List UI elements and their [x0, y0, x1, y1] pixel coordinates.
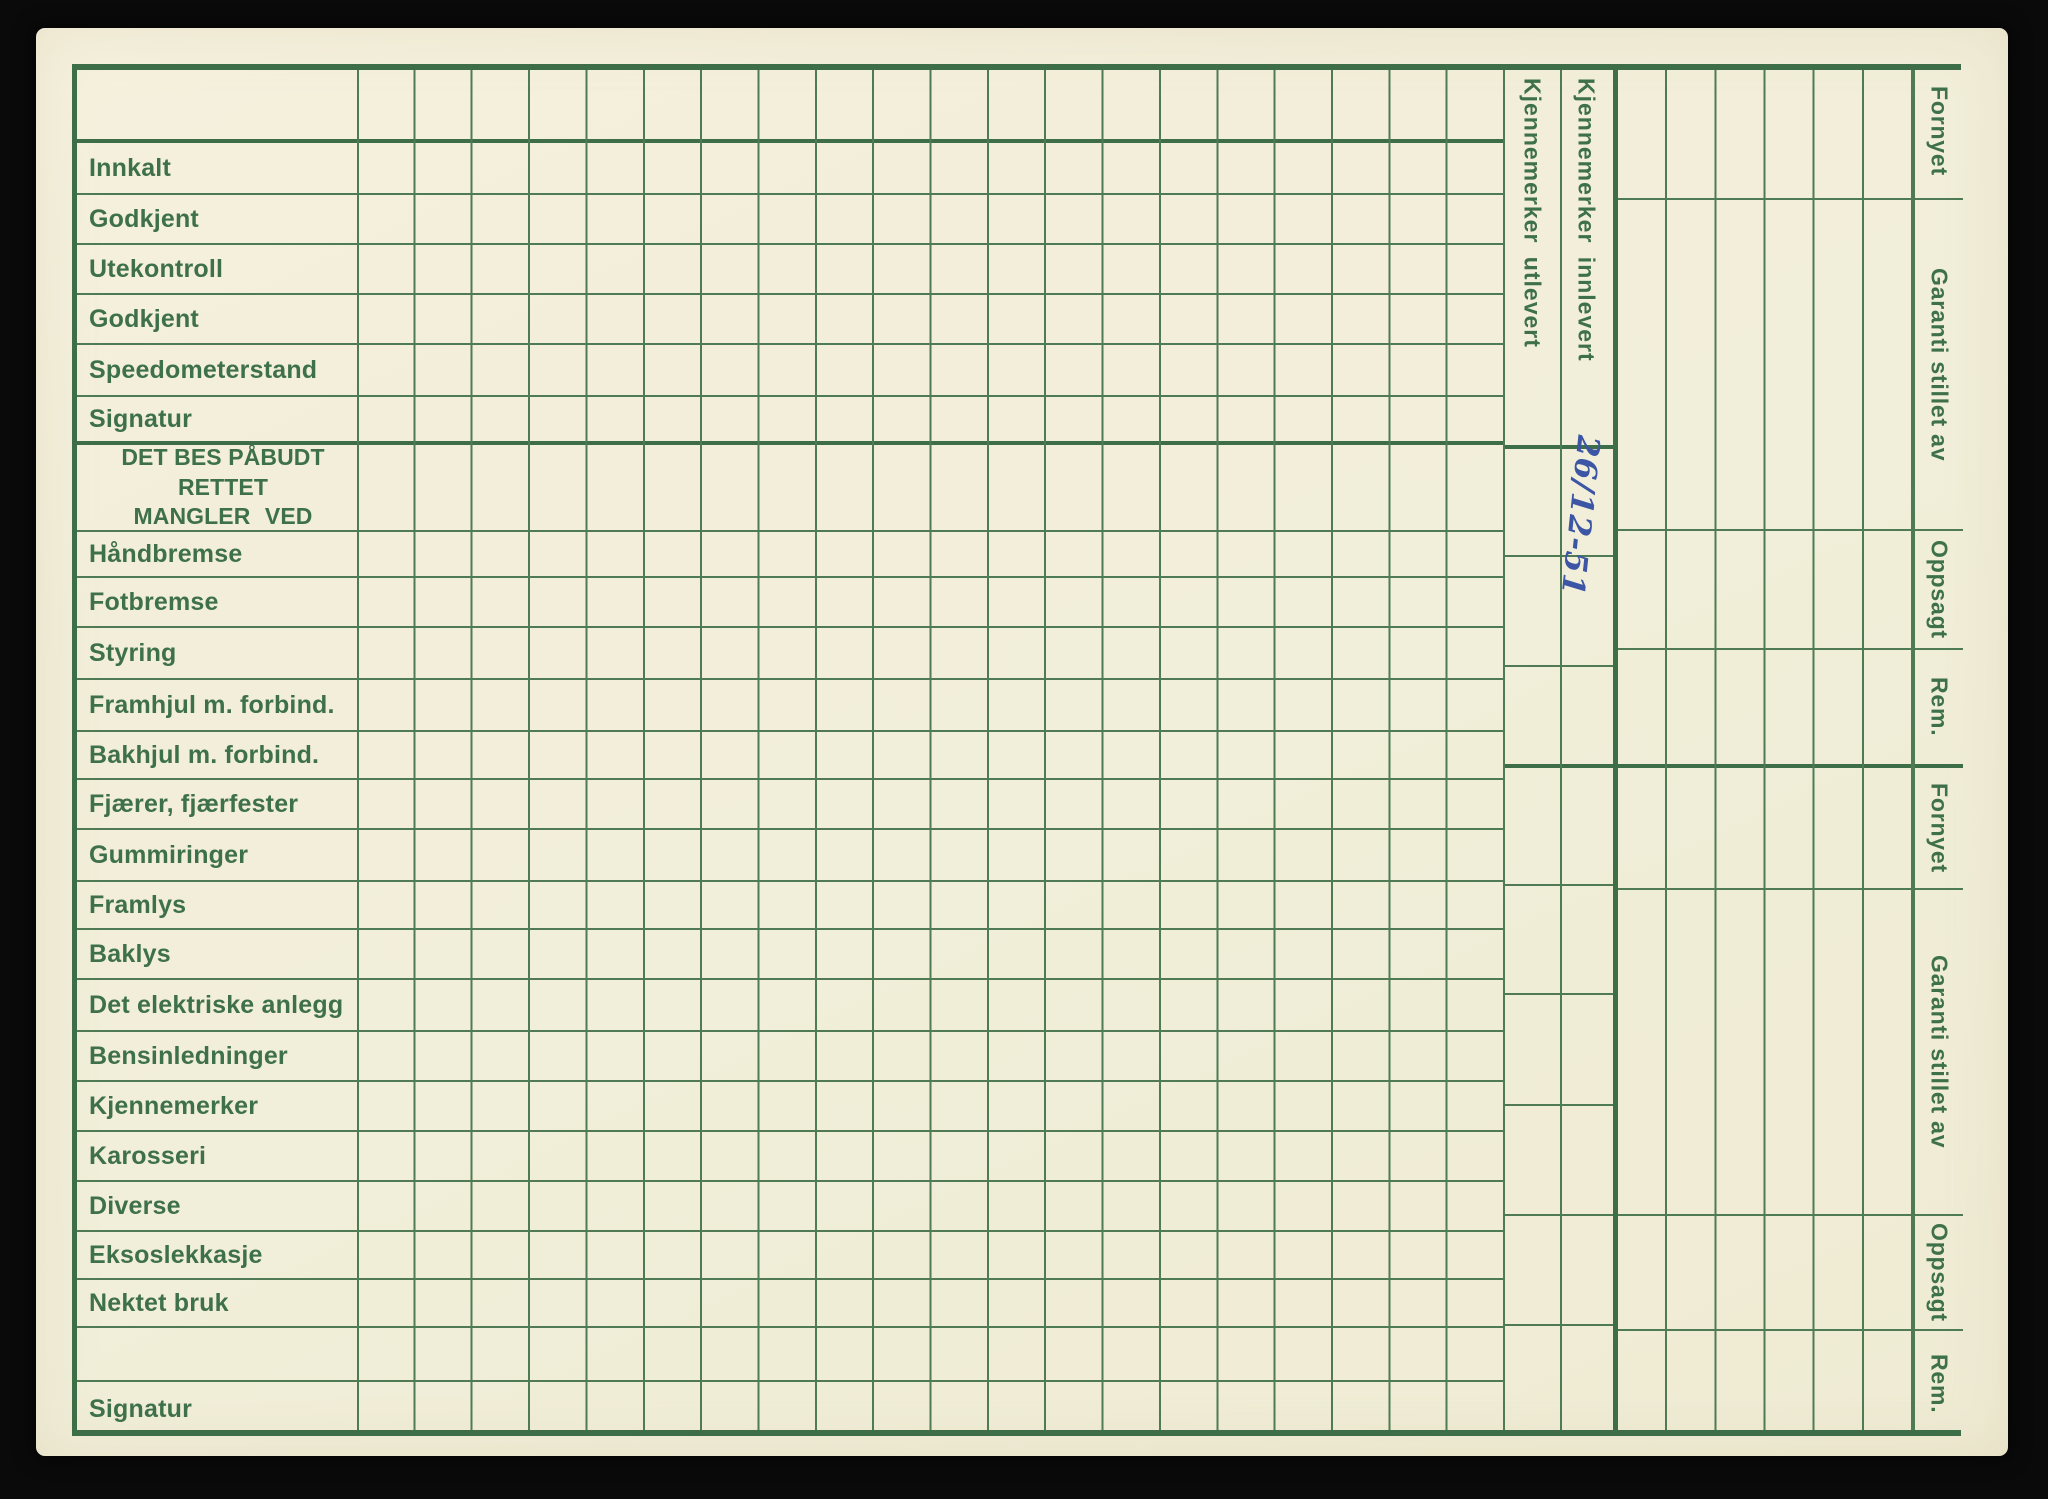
row-label: Utekontroll	[89, 255, 223, 284]
row-label: Signatur	[89, 1395, 192, 1424]
label-column-divider	[357, 64, 359, 1436]
form-row: Eksoslekkasje	[72, 1232, 1505, 1280]
row-label: Godkjent	[89, 205, 199, 234]
section-label-cell: Rem.	[1915, 650, 1963, 764]
form-row: Gummiringer	[72, 830, 1505, 882]
row-label: Innkalt	[89, 154, 171, 183]
section-label: Rem.	[1926, 677, 1953, 736]
form-row: Nektet bruk	[72, 1280, 1505, 1328]
section-label-cell: Fornyet	[1915, 64, 1963, 198]
form-row: Håndbremse	[72, 532, 1505, 578]
row-label-line2: MANGLER VED	[84, 502, 362, 531]
section-label: Oppsagt	[1926, 540, 1953, 639]
section-label: Fornyet	[1926, 783, 1953, 873]
form-row: Styring	[72, 628, 1505, 680]
row-label: Fotbremse	[89, 588, 219, 617]
row-label: Fjærer, fjærfester	[89, 790, 298, 819]
form-row: Fjærer, fjærfester	[72, 780, 1505, 830]
section-label-cell: Rem.	[1915, 1331, 1963, 1436]
section-label-cell: Oppsagt	[1915, 531, 1963, 648]
right-section: Garanti stillet av	[1618, 890, 1963, 1216]
row-label: DET BES PÅBUDT RETTET	[84, 443, 362, 502]
right-section: Rem.	[1618, 1331, 1963, 1436]
grid-cell	[1505, 995, 1613, 1106]
form-row: Utekontroll	[72, 245, 1505, 295]
form-row: Godkjent	[72, 195, 1505, 245]
kjennemerker-column-header: Kjennemerker innlevert	[1559, 64, 1613, 445]
row-label: Baklys	[89, 940, 171, 969]
form-row: DET BES PÅBUDT RETTET MANGLER VED	[72, 445, 1505, 532]
section-label: Fornyet	[1926, 86, 1953, 176]
section-label: Rem.	[1926, 1354, 1953, 1413]
form-row	[72, 1328, 1505, 1382]
form-row: Speedometerstand	[72, 345, 1505, 397]
header-band	[72, 64, 1505, 143]
section-label: Garanti stillet av	[1926, 955, 1953, 1148]
form-row: Diverse	[72, 1182, 1505, 1232]
row-label: Diverse	[89, 1192, 181, 1221]
grid-cell	[1505, 886, 1613, 995]
form-row: Det elektriske anlegg	[72, 980, 1505, 1032]
row-label: Bensinledninger	[89, 1042, 288, 1071]
right-section: Fornyet	[1618, 768, 1963, 890]
row-label: Framhjul m. forbind.	[89, 691, 335, 720]
kjennemerker-middle-divider	[1560, 64, 1562, 1436]
column-header-label: Kjennemerker innlevert	[1573, 78, 1600, 445]
right-section: Garanti stillet av	[1618, 200, 1963, 531]
row-label: Signatur	[89, 405, 192, 434]
form-row: Innkalt	[72, 143, 1505, 195]
section-label-cell: Fornyet	[1915, 768, 1963, 888]
section-label: Garanti stillet av	[1926, 268, 1953, 461]
grid-cell	[1505, 768, 1613, 886]
kjennemerker-headers: Kjennemerker utlevert Kjennemerker innle…	[1505, 64, 1613, 445]
row-label: Framlys	[89, 891, 186, 920]
section-label-cell: Garanti stillet av	[1915, 890, 1963, 1214]
row-label: Gummiringer	[89, 841, 248, 870]
left-rows-block: Innkalt Godkjent Utekontroll Godkjent Sp…	[72, 64, 1505, 1436]
grid-cell	[1505, 1216, 1613, 1326]
row-label: Eksoslekkasje	[89, 1241, 263, 1270]
form-row: Signatur	[72, 1382, 1505, 1436]
scan-background: { "colors": { "bg": "#0a0a0a", "paper": …	[0, 0, 2048, 1499]
form-row: Godkjent	[72, 295, 1505, 345]
right-section: Rem.	[1618, 650, 1963, 768]
row-label: Håndbremse	[89, 540, 242, 569]
row-label: Karosseri	[89, 1142, 206, 1171]
row-label: Styring	[89, 639, 177, 668]
right-section: Fornyet	[1618, 64, 1963, 200]
row-label: Godkjent	[89, 305, 199, 334]
form-row: Bakhjul m. forbind.	[72, 732, 1505, 780]
form-row: Baklys	[72, 930, 1505, 980]
kjennemerker-column-header: Kjennemerker utlevert	[1505, 64, 1559, 445]
form-row: Fotbremse	[72, 578, 1505, 628]
kjennemerker-columns: Kjennemerker utlevert Kjennemerker innle…	[1505, 64, 1618, 1436]
row-label: Kjennemerker	[89, 1092, 258, 1121]
form-row: Kjennemerker	[72, 1082, 1505, 1132]
section-label-cell: Oppsagt	[1915, 1216, 1963, 1329]
row-label: Speedometerstand	[89, 356, 317, 385]
right-section: Oppsagt	[1618, 1216, 1963, 1331]
column-header-label: Kjennemerker utlevert	[1519, 78, 1546, 445]
grid-cell	[1505, 667, 1613, 768]
right-sections-block: Fornyet Garanti stillet av Oppsagt Rem.	[1618, 64, 1963, 1436]
form-row: Signatur	[72, 397, 1505, 445]
form-row: Bensinledninger	[72, 1032, 1505, 1082]
grid-cell	[1505, 1106, 1613, 1216]
right-section: Oppsagt	[1618, 531, 1963, 650]
row-label: Nektet bruk	[89, 1289, 229, 1318]
row-label: Det elektriske anlegg	[89, 991, 343, 1020]
section-label-cell: Garanti stillet av	[1915, 200, 1963, 529]
form-row: Karosseri	[72, 1132, 1505, 1182]
row-label: Bakhjul m. forbind.	[89, 741, 319, 770]
form-card: Innkalt Godkjent Utekontroll Godkjent Sp…	[36, 28, 2008, 1456]
form-row: Framlys	[72, 882, 1505, 930]
right-label-column-divider	[1913, 64, 1915, 1436]
section-label: Oppsagt	[1926, 1223, 1953, 1322]
form-row: Framhjul m. forbind.	[72, 680, 1505, 732]
grid-cell	[1505, 1326, 1613, 1436]
